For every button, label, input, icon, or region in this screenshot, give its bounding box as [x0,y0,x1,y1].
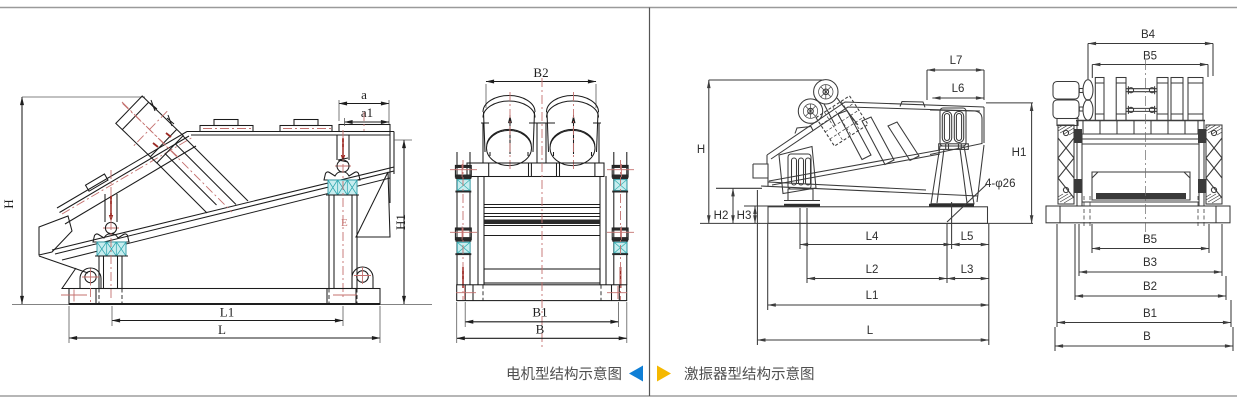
svg-text:E: E [341,217,348,229]
svg-text:激振器型结构示意图: 激振器型结构示意图 [684,365,815,383]
svg-text:B5: B5 [1143,234,1157,246]
svg-text:B3: B3 [1143,257,1157,269]
svg-text:L2: L2 [866,264,879,276]
svg-text:L1: L1 [866,290,879,302]
svg-text:B5: B5 [1143,51,1157,63]
svg-text:电机型结构示意图: 电机型结构示意图 [506,365,622,383]
svg-text:L: L [218,322,226,337]
svg-text:H: H [697,144,705,156]
svg-text:L5: L5 [961,231,974,243]
svg-text:H2: H2 [714,210,729,222]
svg-text:L4: L4 [866,231,879,243]
svg-text:B: B [536,322,545,337]
svg-text:B2: B2 [1143,281,1157,293]
svg-text:L3: L3 [961,264,974,276]
svg-text:B4: B4 [1141,29,1156,41]
svg-text:B1: B1 [532,305,547,320]
svg-text:H1: H1 [393,214,408,230]
svg-text:4-φ26: 4-φ26 [985,178,1015,190]
svg-text:H1: H1 [1012,147,1027,159]
svg-text:B: B [1143,331,1151,343]
svg-text:H: H [1,199,16,208]
svg-text:L6: L6 [952,83,965,95]
svg-text:a1: a1 [361,105,373,120]
svg-text:B1: B1 [1143,308,1157,320]
svg-text:a: a [361,87,367,102]
svg-text:L: L [867,325,874,337]
svg-text:L7: L7 [950,55,963,67]
svg-text:L1: L1 [220,305,234,320]
svg-text:H3: H3 [737,210,752,222]
svg-text:B2: B2 [533,65,548,80]
